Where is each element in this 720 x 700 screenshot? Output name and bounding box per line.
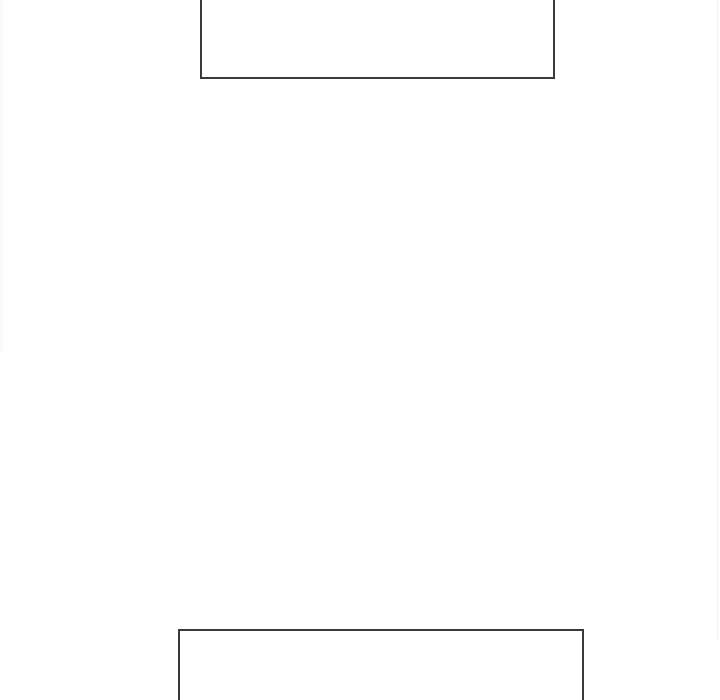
left-edge-artifact — [0, 0, 3, 352]
top-dialog-box — [200, 0, 555, 79]
bottom-dialog-box — [178, 629, 584, 700]
viewport-canvas — [0, 0, 720, 700]
right-edge-artifact — [717, 0, 718, 640]
